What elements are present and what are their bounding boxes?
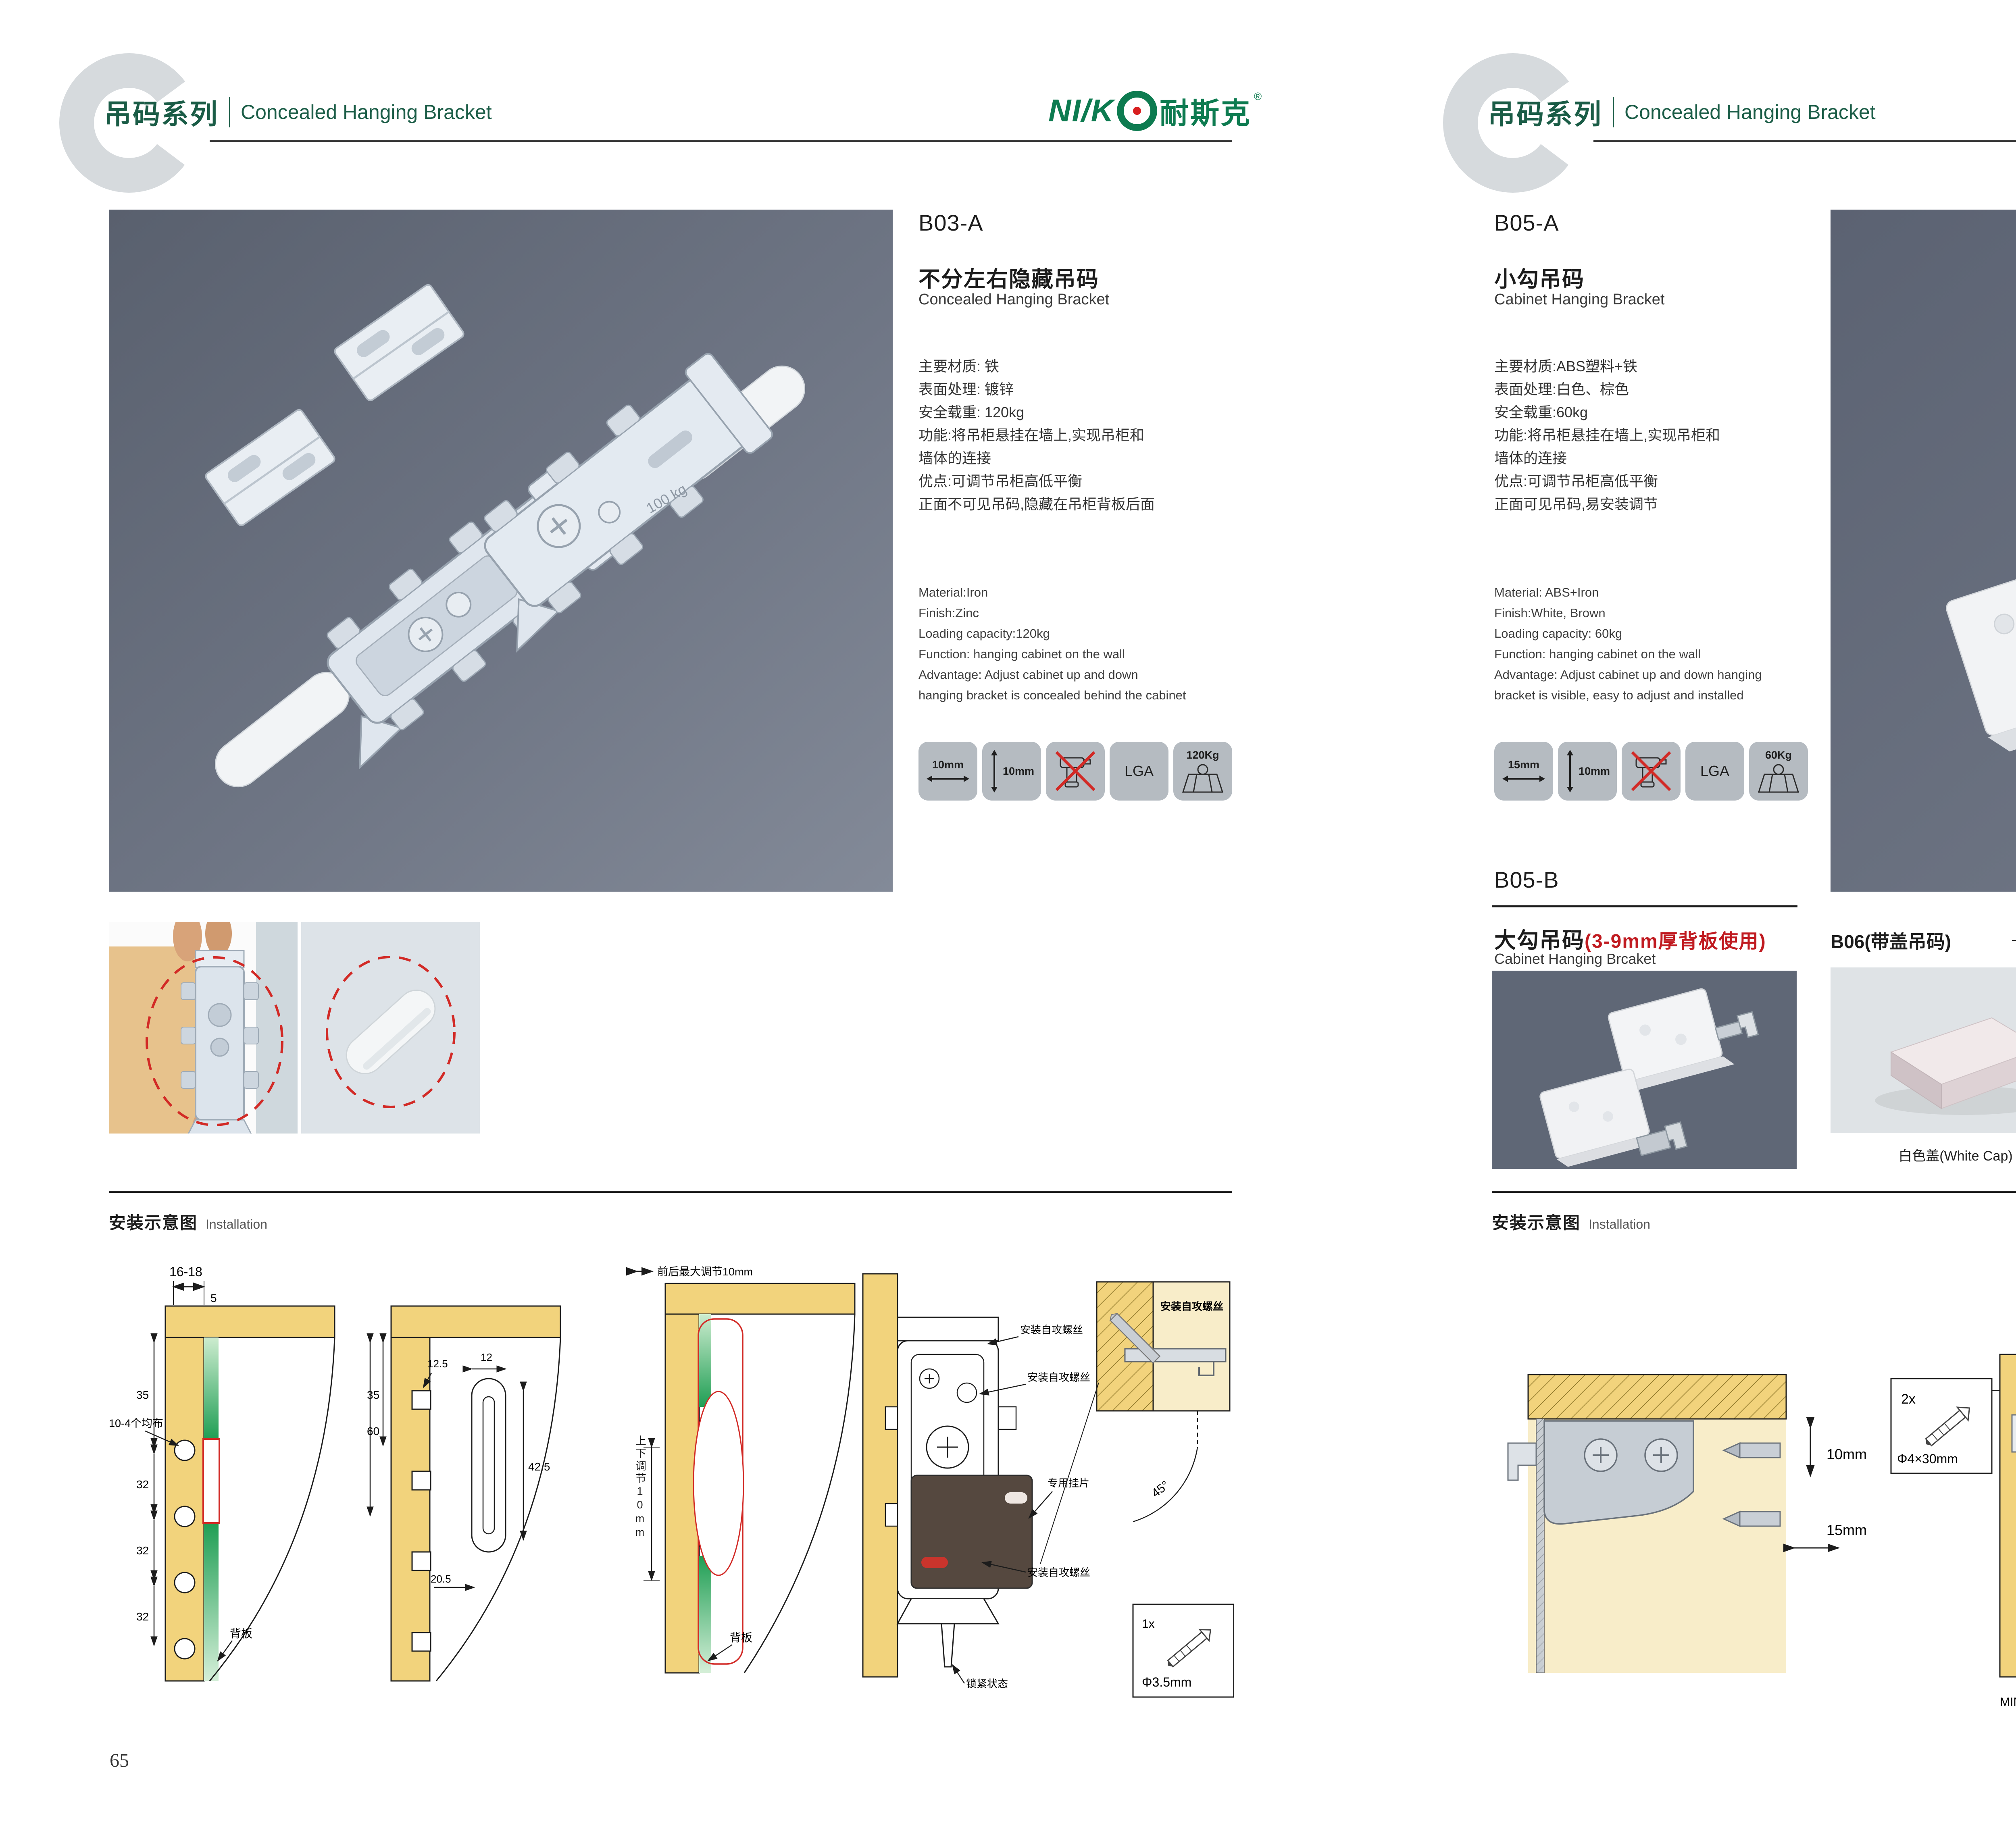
b06-rule [2012,940,2016,941]
dim-label: Φ4×30mm [1897,1452,1958,1466]
header-divider [1613,97,1614,127]
page-header-left: 吊码系列 Concealed Hanging Bracket [104,92,492,132]
product-name-en: Cabinet Hanging Brcaket [1494,951,1656,967]
spec-line: 主要材质:ABS塑料+铁 [1494,355,1825,378]
specs-en: Material: ABS+Iron Finish:White, Brown L… [1494,582,1833,705]
load-icon [1181,764,1225,794]
diagram-adjustment-section: 前后最大调节10mm 背板 [637,1266,855,1673]
spec-line: 功能:将吊柜悬挂在墙上,实现吊柜和 [918,424,1249,447]
spec-line: 安全载重: 120kg [918,401,1249,424]
installation-title-en: Installation [1589,1217,1650,1232]
badge-value: LGA [1700,763,1729,780]
feature-badges-b05a: 15mm 10mm LGA 60Kg [1494,742,1808,801]
product-code: B05-A [1494,210,1559,236]
badge-panel-width: 15mm [1494,742,1553,801]
h-arrow-icon [926,774,970,784]
spec-line: Function: hanging cabinet on the wall [918,644,1249,664]
badge-load: 60Kg [1749,742,1808,801]
badge-value: 120Kg [1186,749,1219,761]
spec-line: 墙体的连接 [918,447,1249,470]
specs-cn: 主要材质: 铁 表面处理: 镀锌 安全载重: 120kg 功能:将吊柜悬挂在墙上… [918,355,1249,516]
diagram-screw-detail: 安装自攻螺丝 45° 1x Φ3.5mm [1040,1282,1234,1697]
installation-diagrams-left: 16-18 5 35 32 32 32 10-4个均布 [109,1258,1234,1719]
page-header-right: 吊码系列 Concealed Hanging Bracket [1488,92,1876,132]
annotation: 安装自攻螺丝 [1027,1371,1090,1383]
dim-label: 45° [1149,1479,1172,1500]
badge-lga: LGA [1685,742,1744,801]
dim-label: 12 [481,1351,492,1363]
dim-label: 15mm [1826,1522,1867,1538]
diagram-mount-section-1: 10mm 15mm [1508,1375,1867,1673]
dim-label: 32 [136,1544,149,1557]
feature-badges-b03a: 10mm 10mm LGA 120Kg [918,742,1232,801]
installation-diagrams-right: 10mm 15mm 2x Φ4×30mm [1492,1258,2016,1719]
badge-no-drill [1622,742,1681,801]
product-photo-b05b [1492,971,1797,1171]
annotation: 10-4个均布 [109,1417,163,1429]
dim-label: 2x [1901,1391,1916,1407]
spec-line: hanging bracket is concealed behind the … [918,685,1249,705]
annotation: 前后最大调节10mm [657,1266,753,1278]
spec-line: Function: hanging cabinet on the wall [1494,644,1833,664]
dim-label: 35 [136,1389,149,1401]
name-main: 大勾吊码 [1494,928,1585,953]
product-name-cn: 大勾吊码(3-9mm厚背板使用) [1494,922,1766,954]
product-photo-b03a: 100 kg [109,210,893,894]
annotation: 背板 [230,1627,252,1640]
specs-cn: 主要材质:ABS塑料+铁 表面处理:白色、棕色 安全载重:60kg 功能:将吊柜… [1494,355,1825,516]
page-number-left: 65 [110,1749,129,1772]
installation-header-right: 安装示意图 Installation [1492,1209,1650,1234]
logo-latin: NI/K [1048,92,1114,129]
dim-label: 60 [367,1425,379,1437]
header-divider [229,97,230,127]
cap-photo-white [1831,967,2016,1135]
product-code: B03-A [918,210,983,236]
dim-label: 1x [1142,1617,1155,1631]
b05b-underline [1492,905,1797,907]
dim-label: 35 [367,1389,379,1401]
spec-line: 墙体的连接 [1494,447,1825,470]
detail-photo-cover-cap [301,922,480,1136]
spec-line: 表面处理: 镀锌 [918,378,1249,401]
dim-label: 5 [210,1292,217,1304]
badge-value: LGA [1125,763,1154,780]
badge-value: 10mm [1003,765,1034,778]
product-name-cn: 不分左右隐藏吊码 [918,261,1099,293]
series-title-en: Concealed Hanging Bracket [241,100,492,124]
catalog-spread: 吊码系列 Concealed Hanging Bracket NI/K 耐斯克 … [0,0,2016,1847]
dim-label: 32 [136,1478,149,1491]
no-drill-icon [1629,749,1673,793]
product-photo-b05a [1831,210,2016,894]
badge-panel-width: 10mm [918,742,977,801]
screw-spec-box: 2x Φ4×30mm [1891,1379,2016,1473]
annotation: 安装自攻螺丝 [1020,1324,1083,1336]
hanging-plate [911,1475,1032,1588]
installation-title-cn: 安装示意图 [109,1209,198,1234]
load-icon [1756,764,1801,794]
spec-line: Loading capacity:120kg [918,623,1249,644]
v-arrow-icon [1565,749,1575,793]
badge-panel-height: 10mm [982,742,1041,801]
spec-line: Advantage: Adjust cabinet up and down ha… [1494,664,1833,685]
spec-line: 正面可见吊码,易安装调节 [1494,493,1825,516]
annotation: 锁紧状态 [966,1678,1008,1690]
badge-value: 10mm [1579,765,1610,778]
logo-o-icon [1117,91,1157,131]
specs-en: Material:Iron Finish:Zinc Loading capaci… [918,582,1249,705]
dim-label: 20.5 [431,1573,451,1585]
dim-label: Φ3.5mm [1142,1675,1191,1689]
nisko-logo: NI/K 耐斯克 ® [1048,89,1262,132]
dim-label: 42.5 [528,1460,550,1473]
badge-value: 60Kg [1765,749,1792,761]
logo-cn: 耐斯克 [1160,89,1252,132]
section-rule-right [1492,1191,2016,1193]
installation-title-cn: 安装示意图 [1492,1209,1581,1234]
annotation: 背板 [730,1631,752,1644]
spec-line: bracket is visible, easy to adjust and i… [1494,685,1833,705]
spec-line: 主要材质: 铁 [918,355,1249,378]
badge-value: 15mm [1508,759,1539,771]
product-code: B05-B [1494,867,1559,893]
dim-label: 32 [136,1610,149,1623]
cap-label-white: 白色盖(White Cap) [1831,1145,2016,1165]
product-name-cn: 小勾吊码 [1494,261,1585,293]
header-rule-left [210,140,1232,142]
series-title-cn: 吊码系列 [1488,92,1602,132]
product-name-en: Concealed Hanging Bracket [918,291,1109,308]
spec-line: 优点:可调节吊柜高低平衡 [918,470,1249,493]
annotation: 安装自攻螺丝 [1160,1300,1223,1312]
spec-line: 安全载重:60kg [1494,401,1825,424]
spec-line: 优点:可调节吊柜高低平衡 [1494,470,1825,493]
dim-label: 16-18 [169,1265,202,1279]
spec-line: Loading capacity: 60kg [1494,623,1833,644]
spec-line: Finish:White, Brown [1494,603,1833,623]
spec-line: Advantage: Adjust cabinet up and down [918,664,1249,685]
no-drill-icon [1053,749,1098,793]
dim-label: 12.5 [427,1358,448,1370]
b06-title: B06(带盖吊码) [1831,927,1951,954]
detail-photo-bracket-installed [109,922,298,1136]
installation-title-en: Installation [206,1217,267,1232]
spec-line: 表面处理:白色、棕色 [1494,378,1825,401]
product-name-en: Cabinet Hanging Bracket [1494,291,1664,308]
name-note-red: (3-9mm厚背板使用) [1585,931,1766,952]
badge-panel-height: 10mm [1558,742,1617,801]
section-rule-left [109,1191,1232,1193]
series-title-cn: 吊码系列 [104,92,219,132]
v-arrow-icon [989,749,1000,793]
vertical-adjust-label: 上下调节10mm [632,1435,648,1540]
dim-label: MIN.10 [2000,1695,2016,1709]
diagram-mount-section-2: 18 MIN.10 MAX.23 58 [2000,1354,2016,1717]
spec-line: Material:Iron [918,582,1249,603]
installation-header-left: 安装示意图 Installation [109,1209,267,1234]
registered-mark: ® [1254,90,1262,103]
badge-value: 10mm [932,759,964,771]
series-title-en: Concealed Hanging Bracket [1624,100,1876,124]
annotation: 安装自攻螺丝 [1027,1566,1090,1579]
diagram-backpanel-holes: 16-18 5 35 32 32 32 10-4个均布 [109,1265,335,1681]
header-rule-right [1593,140,2016,142]
spec-line: 正面不可见吊码,隐藏在吊柜背板后面 [918,493,1249,516]
dim-label: 10mm [1826,1446,1867,1462]
h-arrow-icon [1502,774,1546,784]
spec-line: Material: ABS+Iron [1494,582,1833,603]
spec-line: 功能:将吊柜悬挂在墙上,实现吊柜和 [1494,424,1825,447]
spec-line: Finish:Zinc [918,603,1249,623]
badge-load: 120Kg [1173,742,1232,801]
diagram-bracket-annotated: 安装自攻螺丝 安装自攻螺丝 专用挂片 安装自攻螺丝 锁紧状态 [863,1274,1090,1690]
diagram-sidepanel-dims: 35 60 12.5 12 42.5 20.5 [367,1306,560,1681]
badge-lga: LGA [1110,742,1168,801]
annotation: 专用挂片 [1048,1477,1089,1489]
badge-no-drill [1046,742,1105,801]
